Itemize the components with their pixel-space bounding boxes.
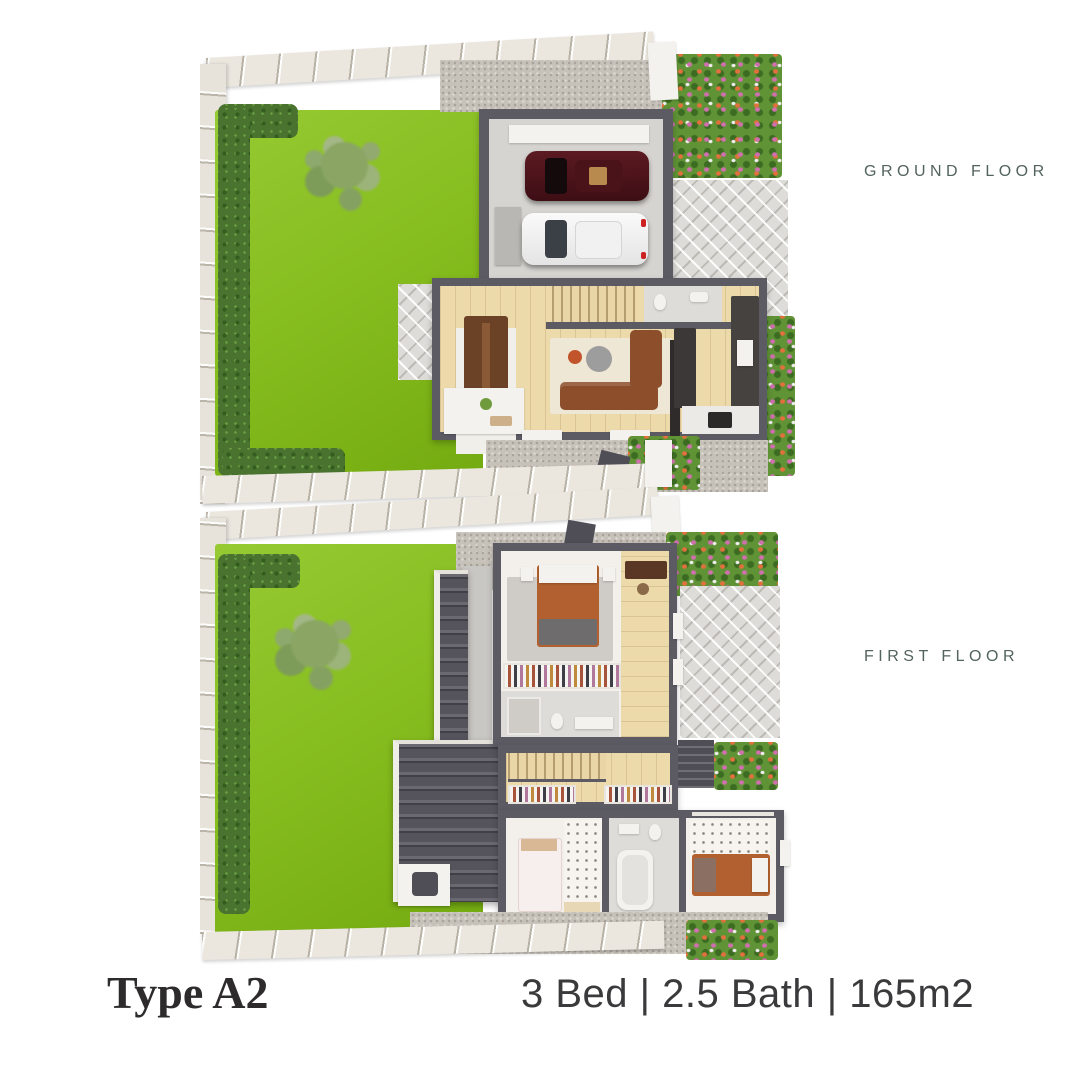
garage-floor xyxy=(489,119,663,299)
master-bedroom-block xyxy=(493,543,677,745)
wall-divider xyxy=(679,818,686,914)
toilet xyxy=(649,824,661,840)
hedge-left xyxy=(218,558,250,914)
car-windshield xyxy=(545,220,568,257)
wall-divider xyxy=(602,818,609,914)
tub-basin xyxy=(622,855,648,905)
master-bathroom xyxy=(501,691,619,737)
table-runner xyxy=(482,323,491,392)
stairs xyxy=(508,753,606,782)
coffee-table xyxy=(586,346,612,372)
toilet xyxy=(654,294,666,310)
kitchen-island xyxy=(674,328,696,408)
paved-terrace-right xyxy=(680,586,780,738)
window-planter xyxy=(673,613,683,639)
toilet xyxy=(551,713,563,729)
sink xyxy=(737,340,753,366)
hedge-left xyxy=(218,108,250,476)
entry-porch xyxy=(444,388,524,434)
master-interior xyxy=(501,551,669,737)
desk-chair xyxy=(637,583,649,595)
patio-left-of-house xyxy=(398,284,436,380)
bed-pillows xyxy=(539,565,597,583)
potted-plant xyxy=(480,398,492,410)
window-sill xyxy=(522,430,562,440)
wardrobe-row xyxy=(503,663,621,689)
first-floor-label: FIRST FLOOR xyxy=(864,648,1019,666)
stove xyxy=(708,412,732,428)
garage-storage-cabinet xyxy=(495,207,521,265)
basin xyxy=(690,292,708,302)
car-sunroof xyxy=(589,167,606,185)
bedroom2-bed xyxy=(518,838,562,912)
bathtub xyxy=(617,850,653,910)
shower xyxy=(507,697,541,735)
nightstand xyxy=(603,567,615,581)
wc xyxy=(644,286,722,322)
bedrooms-block xyxy=(498,810,784,922)
skylight xyxy=(412,872,438,896)
car-roof xyxy=(575,221,622,258)
sofa-chaise xyxy=(630,330,662,388)
bed-throw xyxy=(694,858,716,892)
bedrooms-interior xyxy=(506,818,776,914)
car-taillight xyxy=(641,219,646,226)
stairs-block xyxy=(498,745,678,810)
first-floor-plan xyxy=(200,506,796,962)
bedroom3-bed xyxy=(692,854,770,896)
bed-headboard xyxy=(521,839,557,851)
gate-pillar-bottom xyxy=(645,440,672,487)
bed-throw xyxy=(539,619,597,645)
driveway-gravel-top xyxy=(440,60,665,112)
kitchen-counter-bottom xyxy=(682,406,759,434)
unit-type-title: Type A2 xyxy=(107,966,268,1019)
car-windshield xyxy=(545,158,567,194)
window-planter xyxy=(673,659,683,685)
nightstand xyxy=(521,567,533,581)
unit-specs: 3 Bed | 2.5 Bath | 165m2 xyxy=(521,972,974,1017)
door-mat xyxy=(490,416,512,426)
window-planter xyxy=(780,840,790,866)
desk xyxy=(625,561,667,579)
car-maroon xyxy=(525,151,649,201)
floorplan-poster: GROUND FLOOR xyxy=(0,0,1080,1080)
pouf xyxy=(568,350,582,364)
landing-floor xyxy=(506,753,670,802)
bed-pillows xyxy=(752,858,768,892)
roof-band xyxy=(434,570,468,764)
ground-floor-label: GROUND FLOOR xyxy=(864,163,1049,181)
kitchen-counter xyxy=(731,296,759,418)
exterior-stairs xyxy=(678,740,714,788)
wardrobe-row xyxy=(604,785,672,804)
bedroom2-accent-wall xyxy=(564,820,602,902)
dining-table xyxy=(464,316,508,398)
bathroom2 xyxy=(609,818,679,914)
wardrobe-row xyxy=(508,785,576,804)
ground-floor-plan xyxy=(200,16,796,508)
house-ground xyxy=(432,278,767,440)
basin xyxy=(619,824,639,834)
stairs xyxy=(552,286,636,326)
wardrobe-row xyxy=(692,812,774,816)
gate-pillar-top xyxy=(648,41,679,100)
car-taillight xyxy=(641,252,646,259)
skylight-box xyxy=(398,864,450,906)
car-white xyxy=(522,213,648,265)
living-floor xyxy=(440,286,759,432)
master-bed xyxy=(537,565,599,647)
flowerbed-top-right xyxy=(662,54,782,178)
double-basin xyxy=(575,717,613,729)
flowerbed-mid-right xyxy=(714,742,778,790)
garage-door xyxy=(509,125,649,143)
interior-wall xyxy=(546,322,738,329)
flowerbed-bottom-right xyxy=(686,920,778,960)
